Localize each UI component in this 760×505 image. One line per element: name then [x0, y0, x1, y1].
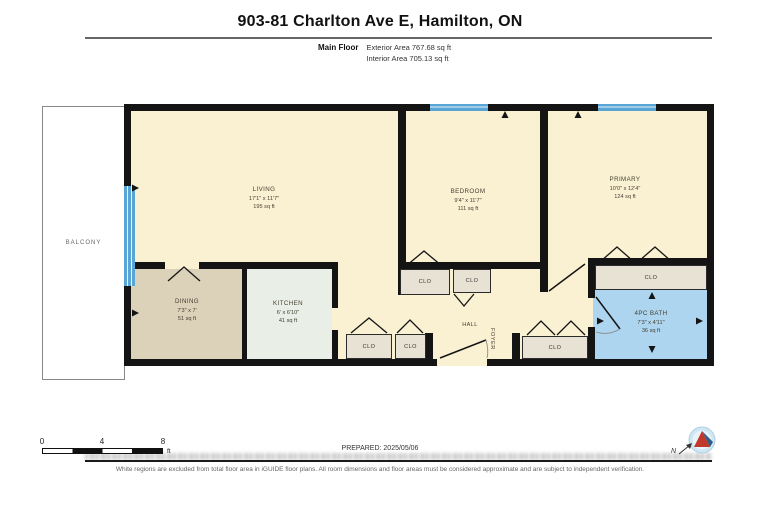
balcony-sliding-door [124, 186, 135, 286]
wall-dining-top-right [199, 262, 242, 269]
prepared-date: PREPARED: 2025/05/06 [0, 445, 760, 452]
wall-entry-left-stub [425, 333, 433, 359]
closet-label: CLO [466, 278, 479, 284]
bedroom-closet-2: CLO [453, 269, 491, 293]
bedroom-label: BEDROOM 9'4" x 11'7" 111 sq ft [418, 188, 518, 213]
north-label: N [671, 448, 676, 455]
closet-label: CLO [363, 344, 376, 350]
exterior-area-text: Exterior Area 767.68 sq ft [366, 42, 451, 53]
bathroom-label: 4PC BATH 7'3" x 4'11" 36 sq ft [601, 310, 701, 335]
window-bedroom [430, 104, 488, 111]
entry-door-opening [437, 359, 487, 366]
closet-label: CLO [404, 344, 417, 350]
page-title: 903-81 Charlton Ave E, Hamilton, ON [0, 13, 760, 31]
wall-bath-left-lower [588, 327, 595, 359]
wall-bedroom-closets [398, 262, 540, 269]
living-room-label: LIVING 17'1" x 11'7" 195 sq ft [214, 186, 314, 211]
redacted-watermark [85, 453, 712, 460]
bottom-rule [85, 460, 712, 462]
closet-label: CLO [549, 345, 562, 351]
foyer-closet: CLO [522, 336, 588, 359]
dining-room-label: DINING 7'3" x 7' 51 sq ft [147, 298, 227, 323]
kitchen-label: KITCHEN 6' x 6'10" 41 sq ft [248, 300, 328, 325]
interior-area-text: Interior Area 705.13 sq ft [366, 53, 451, 64]
foyer-label: FOYER [489, 328, 495, 362]
wall-dining-kitchen [242, 262, 247, 359]
area-summary: Exterior Area 767.68 sq ft Interior Area… [366, 42, 451, 64]
hall-closet-1: CLO [346, 334, 392, 359]
floor-summary: Main Floor Exterior Area 767.68 sq ft In… [318, 42, 451, 64]
disclaimer-text: White regions are excluded from total fl… [0, 466, 760, 473]
window-primary [598, 104, 656, 111]
hall-closet-2: CLO [395, 334, 426, 359]
primary-bedroom-label: PRIMARY 10'0" x 12'4" 124 sq ft [575, 176, 675, 201]
floor-plan-page: 903-81 Charlton Ave E, Hamilton, ON Main… [0, 0, 760, 505]
wall-bath-left-upper [588, 258, 595, 298]
floor-name-label: Main Floor [318, 43, 358, 52]
primary-closet: CLO [595, 265, 707, 290]
wall-foyer-closet-stub [512, 333, 520, 359]
bedroom-closet-1: CLO [400, 269, 450, 295]
wall-kitchen-right-lower [332, 330, 338, 359]
closet-label: CLO [419, 279, 432, 285]
wall-primary-bottom [588, 258, 707, 265]
wall-bedroom-primary [540, 104, 548, 292]
wall-kitchen-top [242, 262, 338, 269]
top-rule [85, 37, 712, 39]
balcony-label: BALCONY [42, 240, 125, 246]
wall-dining-top-left [131, 262, 165, 269]
hall-label: HALL [450, 322, 490, 328]
closet-label: CLO [645, 275, 658, 281]
wall-kitchen-right-upper [332, 262, 338, 308]
